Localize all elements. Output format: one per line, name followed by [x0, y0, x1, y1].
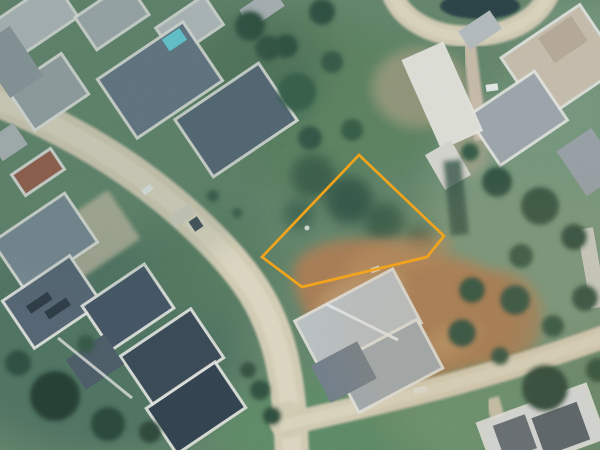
satellite-scene: [0, 0, 600, 450]
photo-grain: [0, 0, 600, 450]
satellite-photo[interactable]: [0, 0, 600, 450]
scene-layers: [0, 0, 600, 450]
